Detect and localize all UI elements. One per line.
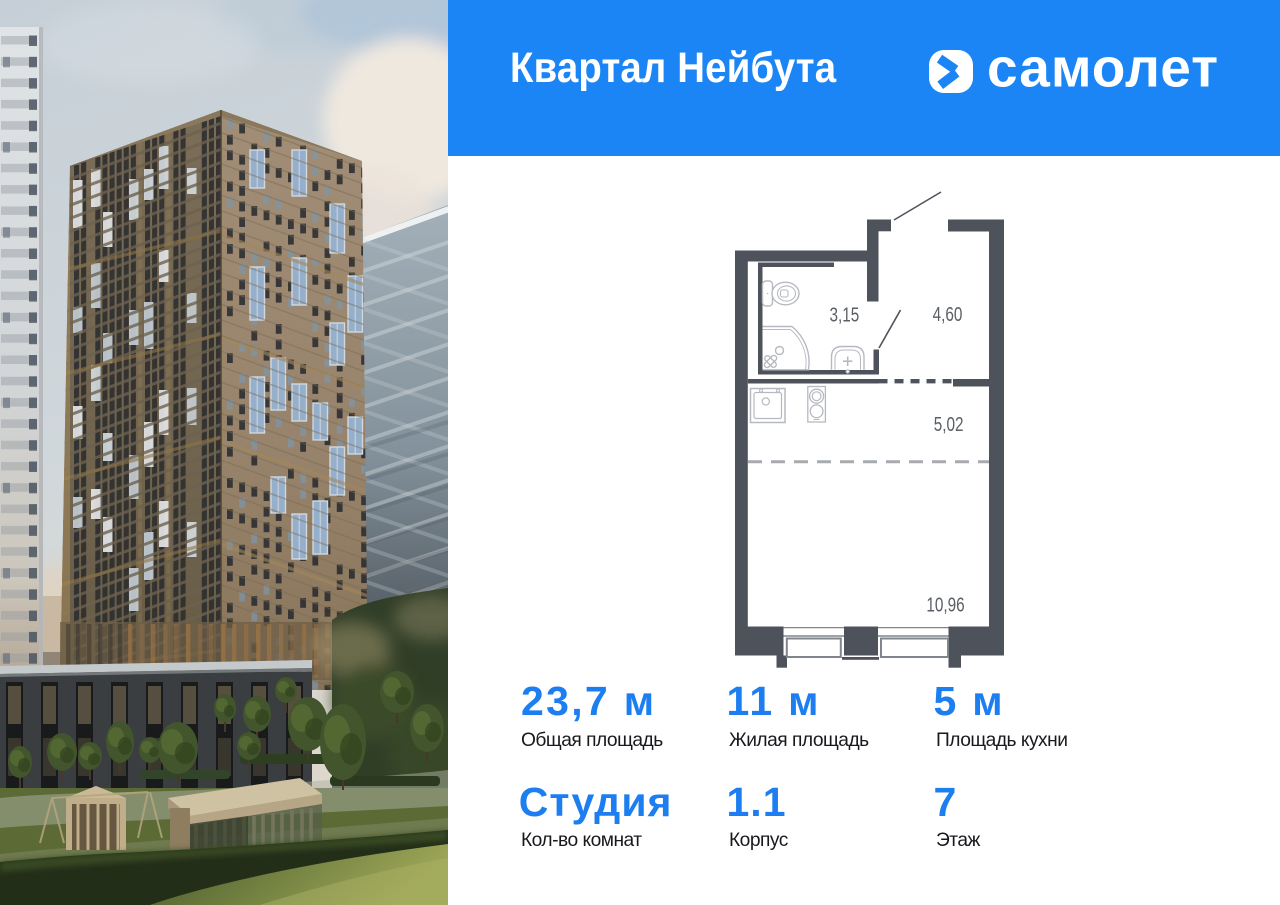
svg-text:4,60: 4,60 <box>933 303 963 326</box>
svg-text:3,15: 3,15 <box>830 304 860 327</box>
svg-text:5,02: 5,02 <box>934 413 964 436</box>
svg-text:10,96: 10,96 <box>926 593 964 616</box>
svg-text:самолет: самолет <box>987 46 1218 99</box>
